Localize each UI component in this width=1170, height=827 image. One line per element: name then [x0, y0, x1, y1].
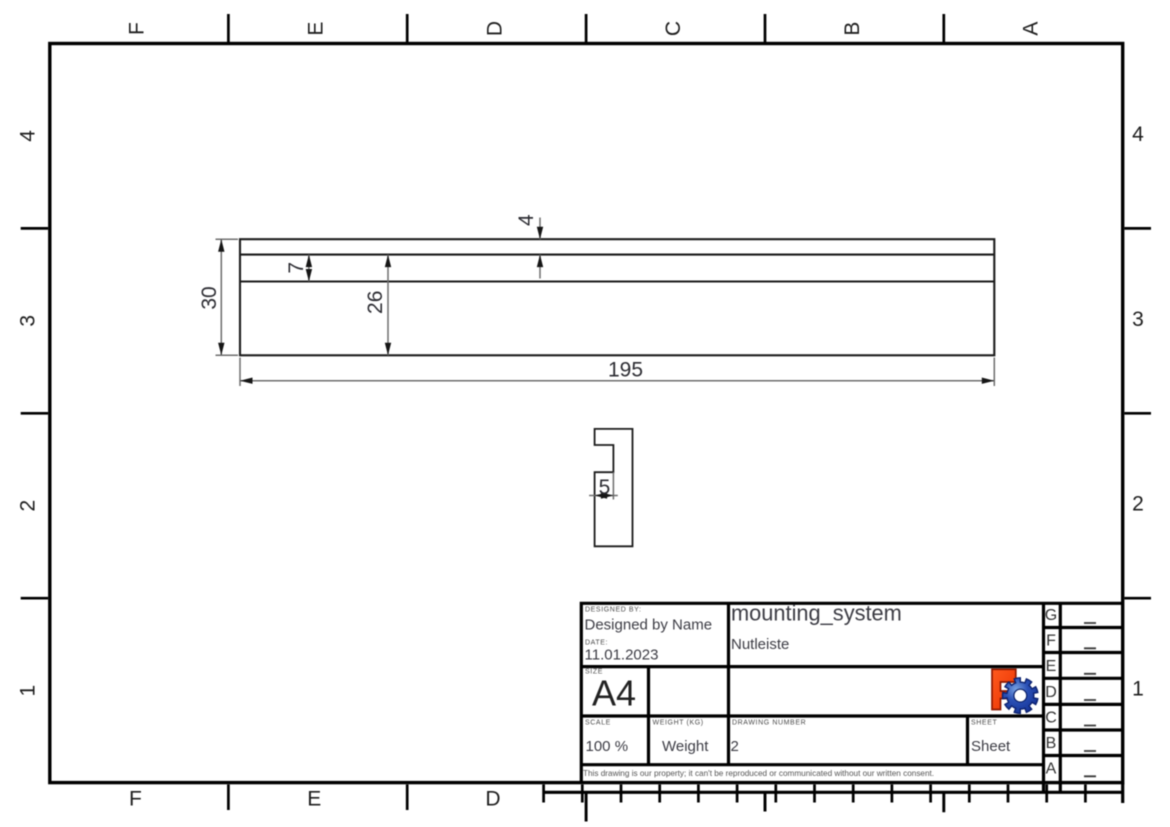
svg-text:D: D	[483, 21, 506, 36]
svg-text:F: F	[126, 22, 149, 35]
svg-text:SHEET: SHEET	[971, 720, 997, 727]
svg-text:100 %: 100 %	[586, 738, 629, 755]
svg-text:Sheet: Sheet	[971, 738, 1011, 755]
svg-text:mounting_system: mounting_system	[731, 601, 902, 626]
svg-text:DATE:: DATE:	[585, 640, 608, 647]
svg-text:11.01.2023: 11.01.2023	[585, 647, 659, 664]
svg-text:A: A	[1020, 22, 1043, 36]
svg-text:195: 195	[608, 359, 643, 382]
svg-text:D: D	[485, 788, 500, 811]
svg-text:B: B	[1046, 735, 1057, 752]
svg-text:B: B	[841, 22, 864, 36]
svg-text:C: C	[662, 21, 685, 36]
svg-text:D: D	[1045, 684, 1057, 701]
svg-text:F: F	[1046, 633, 1056, 650]
svg-text:26: 26	[364, 291, 387, 314]
svg-text:WEIGHT (KG): WEIGHT (KG)	[653, 720, 704, 727]
svg-text:E: E	[307, 788, 321, 811]
svg-text:Weight: Weight	[662, 738, 709, 755]
svg-text:2: 2	[17, 500, 40, 512]
svg-text:4: 4	[1132, 123, 1144, 146]
svg-text:4: 4	[17, 130, 40, 142]
svg-text:7: 7	[285, 262, 308, 274]
svg-text:1: 1	[1132, 678, 1144, 701]
svg-text:E: E	[1046, 658, 1057, 675]
svg-text:A: A	[1046, 761, 1057, 778]
svg-text:5: 5	[599, 476, 611, 499]
svg-text:2: 2	[731, 738, 739, 755]
svg-text:C: C	[1045, 710, 1057, 727]
svg-text:Designed by Name: Designed by Name	[585, 617, 713, 634]
svg-text:4: 4	[515, 214, 538, 226]
svg-text:3: 3	[17, 315, 40, 327]
svg-text:Nutleiste: Nutleiste	[731, 636, 789, 653]
svg-text:F: F	[129, 788, 142, 811]
svg-text:2: 2	[1132, 493, 1144, 516]
svg-text:A4: A4	[592, 673, 636, 714]
svg-text:DESIGNED BY:: DESIGNED BY:	[585, 607, 642, 614]
svg-text:G: G	[1045, 607, 1057, 624]
svg-text:1: 1	[17, 685, 40, 697]
svg-text:This drawing is our property;: This drawing is our property; it can't b…	[583, 769, 934, 778]
svg-text:3: 3	[1132, 308, 1144, 331]
svg-text:30: 30	[198, 286, 221, 309]
svg-text:SCALE: SCALE	[585, 720, 611, 727]
svg-text:DRAWING NUMBER: DRAWING NUMBER	[732, 720, 806, 727]
svg-text:E: E	[305, 22, 328, 36]
